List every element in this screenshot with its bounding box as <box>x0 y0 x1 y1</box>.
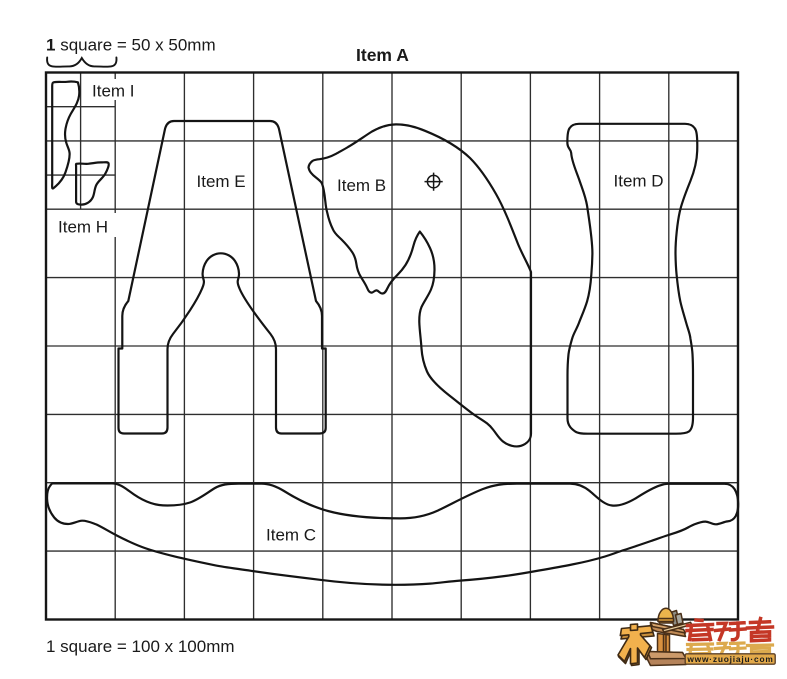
svg-text:Item A: Item A <box>356 45 409 65</box>
svg-text:Item B: Item B <box>337 176 386 195</box>
svg-text:Item H: Item H <box>58 218 108 237</box>
svg-text:Item C: Item C <box>266 526 316 545</box>
svg-text:Item I: Item I <box>92 82 135 101</box>
svg-text:Item E: Item E <box>197 172 246 191</box>
svg-text:1 square = 50 x 50mm: 1 square = 50 x 50mm <box>46 36 216 55</box>
svg-text:Item D: Item D <box>614 172 664 191</box>
svg-text:1 square = 100 x 100mm: 1 square = 100 x 100mm <box>46 637 235 656</box>
svg-text:www·zuojiaju·com: www·zuojiaju·com <box>686 654 773 664</box>
